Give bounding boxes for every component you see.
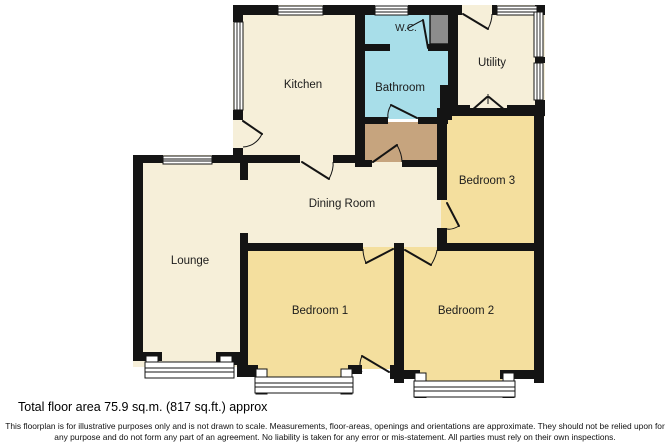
wc-label: W.C. <box>395 23 417 34</box>
kitchen-left-window <box>234 22 243 110</box>
kitchen-label: Kitchen <box>284 79 322 91</box>
lounge-top-window <box>163 156 212 164</box>
wc-top-window <box>375 6 408 15</box>
bedroom1-label: Bedroom 1 <box>292 305 348 317</box>
dining-room-label: Dining Room <box>309 198 375 210</box>
utility-right-window-upper <box>534 12 543 57</box>
bedroom2-label: Bedroom 2 <box>438 305 494 317</box>
lounge-label: Lounge <box>171 255 209 267</box>
kitchen-top-window <box>278 6 323 15</box>
utility-right-window-lower <box>534 63 543 100</box>
chimney-block <box>430 13 450 44</box>
bathroom-label: Bathroom <box>375 82 425 94</box>
floorplan: Kitchen W.C. Utility Bathroom Bedroom 3 … <box>0 0 670 398</box>
bedroom3-label: Bedroom 3 <box>459 175 515 187</box>
total-floor-area-text: Total floor area 75.9 sq.m. (817 sq.ft.)… <box>18 400 670 414</box>
disclaimer-text: This floorplan is for illustrative purpo… <box>0 421 670 443</box>
bedroom1-bay-floor <box>258 365 348 378</box>
footer: Total floor area 75.9 sq.m. (817 sq.ft.)… <box>0 400 670 443</box>
utility-label: Utility <box>478 57 506 69</box>
utility-top-window <box>497 6 537 15</box>
floorplan-svg: Kitchen W.C. Utility Bathroom Bedroom 3 … <box>0 0 670 398</box>
